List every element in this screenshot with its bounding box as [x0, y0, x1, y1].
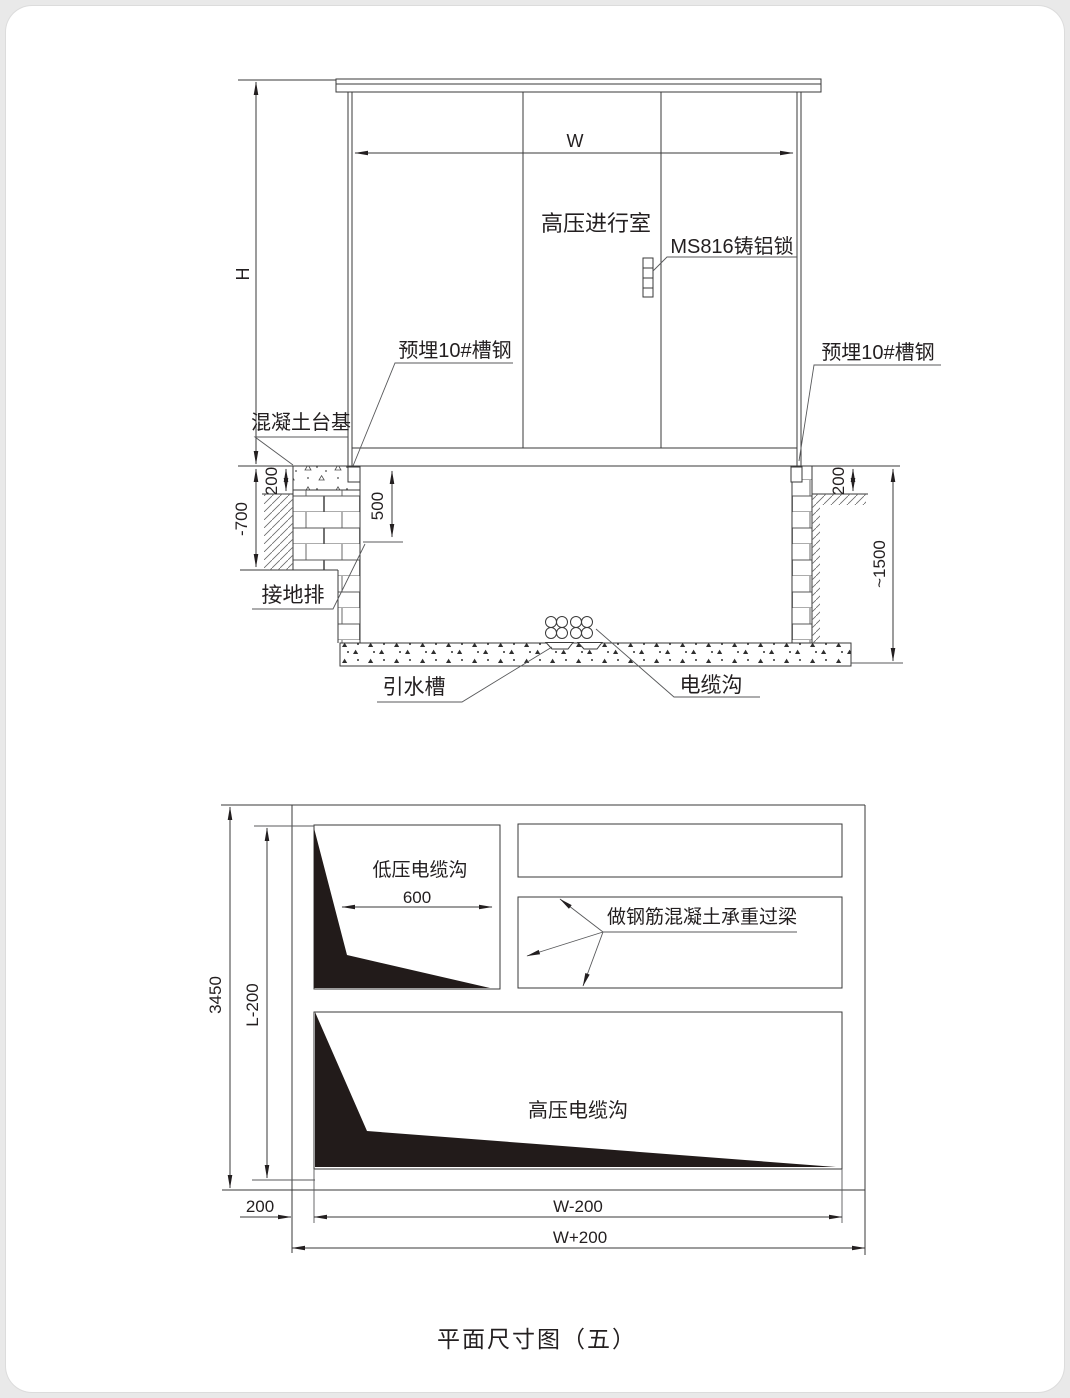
elevation-view: W H 高压进行室 MS816铸铝锁 预埋10#槽钢 预埋10#槽钢 — [232, 79, 941, 702]
dim-W-label: W — [567, 131, 584, 151]
svg-text:200: 200 — [246, 1197, 274, 1216]
dim-H: H — [233, 82, 256, 464]
concrete-base-callout: 混凝土台基 — [251, 411, 351, 465]
concrete-base-label: 混凝土台基 — [251, 411, 351, 434]
left-foundation — [240, 466, 360, 643]
svg-text:W-200: W-200 — [553, 1197, 603, 1216]
svg-text:3450: 3450 — [206, 976, 225, 1014]
ground-hatch-left — [264, 494, 293, 570]
svg-text:W+200: W+200 — [553, 1228, 607, 1247]
lintel-note: 做钢筋混凝土承重过梁 — [527, 899, 797, 986]
lintel-note-label: 做钢筋混凝土承重过梁 — [607, 906, 797, 928]
dim-200-left: 200 — [262, 467, 286, 495]
dim-200-right: 200 — [829, 467, 853, 495]
top-right-bay-outline — [518, 824, 842, 877]
embedded-channel-left-callout: 预埋10#槽钢 — [353, 339, 513, 466]
lv-trench-wedge — [314, 828, 490, 988]
svg-text:600: 600 — [403, 888, 431, 907]
dim-600: 600 — [342, 888, 492, 907]
svg-text:200: 200 — [262, 467, 281, 495]
dim-W+200: W+200 — [292, 1228, 865, 1248]
page: W H 高压进行室 MS816铸铝锁 预埋10#槽钢 预埋10#槽钢 — [0, 0, 1070, 1398]
dim-W-200: W-200 — [314, 1197, 842, 1217]
dim-W: W — [355, 131, 793, 153]
svg-text:500: 500 — [368, 492, 387, 520]
cabinet-roof — [238, 79, 821, 92]
channel-steel-right — [791, 467, 802, 482]
cable-bundle — [546, 617, 593, 639]
trench-floor — [340, 643, 851, 667]
plan-view: 低压电缆沟 高压电缆沟 600 做钢筋混凝土承重过梁 3450 L-200 — [206, 805, 865, 1255]
dim-H-label: H — [233, 268, 253, 281]
hv-room-label: 高压进行室 — [541, 211, 651, 236]
dim-L-200: L-200 — [243, 826, 315, 1180]
svg-text:200: 200 — [829, 467, 848, 495]
door-lock: MS816铸铝锁 — [643, 235, 797, 297]
drawing-sheet: W H 高压进行室 MS816铸铝锁 预埋10#槽钢 预埋10#槽钢 — [6, 6, 1064, 1392]
ground-hatch-right-wall — [812, 494, 820, 643]
svg-text:L-200: L-200 — [243, 983, 262, 1026]
svg-text:~1500: ~1500 — [870, 540, 889, 588]
ground-bar-label: 接地排 — [262, 584, 325, 607]
dim-500: 500 — [363, 471, 403, 542]
channel-steel-left — [348, 467, 360, 482]
technical-drawing: W H 高压进行室 MS816铸铝锁 预埋10#槽钢 预埋10#槽钢 — [6, 6, 1064, 1392]
embedded-channel-right-callout: 预埋10#槽钢 — [799, 341, 941, 461]
cable-trench-label: 电缆沟 — [680, 674, 743, 697]
hv-trench-wedge — [315, 1012, 836, 1167]
dim-3450: 3450 — [206, 807, 230, 1188]
hv-trench-label: 高压电缆沟 — [528, 1099, 628, 1122]
dim-200-bottom: 200 — [240, 1169, 842, 1223]
lv-trench-label: 低压电缆沟 — [372, 859, 467, 881]
dim-minus700: -700 — [232, 469, 256, 567]
lock-label: MS816铸铝锁 — [670, 235, 793, 258]
embedded-channel-right-label: 预埋10#槽钢 — [821, 341, 934, 364]
embedded-channel-left-label: 预埋10#槽钢 — [398, 339, 511, 362]
drawing-title: 平面尺寸图（五） — [437, 1326, 637, 1352]
drain-channel-label: 引水槽 — [383, 676, 446, 699]
svg-text:-700: -700 — [232, 502, 251, 536]
